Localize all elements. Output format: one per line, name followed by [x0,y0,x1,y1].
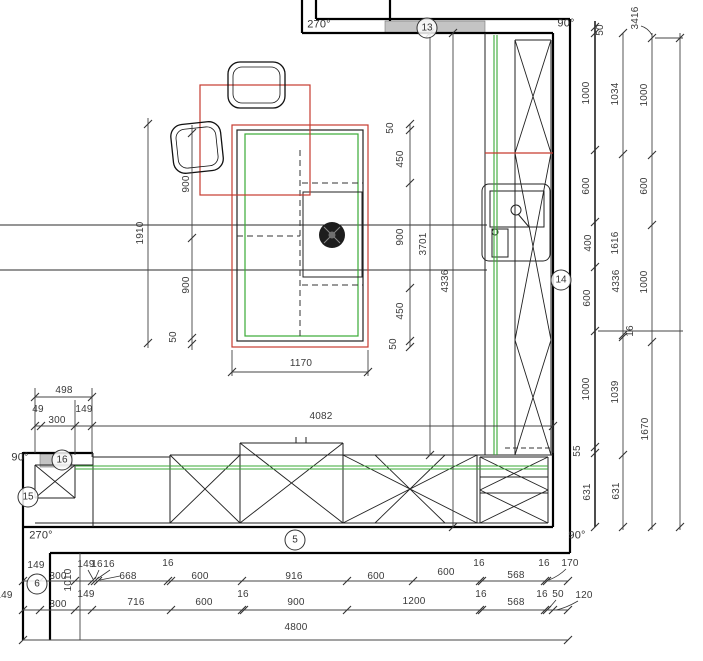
dim-label: 1039 [611,380,621,403]
angle-label: 270° [307,20,331,31]
dim-label: 600 [437,568,454,578]
room-boundary-lines [0,225,487,270]
tall-cabinet-column [485,33,551,455]
dim-label: 149 [75,405,92,415]
angle-label: 90° [568,531,585,542]
dim-label: 600 [583,289,593,306]
dim-label: 149 [0,591,13,601]
position-badge: 5 [285,530,306,551]
dim-label: 1000 [582,81,592,104]
dim-label: 16 [91,560,103,570]
dim-label: 55 [573,445,583,457]
dim-label: 50 [169,331,179,343]
dim-label: 631 [583,483,593,500]
dimension-lines [23,21,683,640]
dim-label: 900 [287,598,304,608]
position-badge: 6 [27,574,48,595]
angle-label: 90° [557,19,574,30]
island-hidden-lines [237,150,363,336]
highlight-outlines [200,85,553,347]
counter-edge-lines [75,35,548,469]
dim-label: 400 [584,234,594,251]
dim-label: 50 [552,590,564,600]
position-badge: 15 [18,487,39,508]
chair-left [170,121,225,175]
dim-label: 600 [640,177,650,194]
dim-label: 4336 [612,269,622,292]
dim-label: 716 [127,598,144,608]
dim-label: 900 [182,276,192,293]
chairs [170,62,285,174]
dim-label: 568 [507,571,524,581]
angle-label: 90° [11,453,28,464]
dim-label: 50 [386,122,396,134]
dim-label: 1034 [611,82,621,105]
dim-label: 16 [475,590,487,600]
dim-label: 16 [536,590,548,600]
dim-label: 600 [191,572,208,582]
dim-label: 4800 [284,623,307,633]
dim-label: 50 [389,338,399,350]
island [237,130,363,341]
dim-label: 149 [77,590,94,600]
dim-label: 1000 [640,83,650,106]
dim-label: 498 [55,386,72,396]
position-badge: 16 [52,450,73,471]
dim-label: 900 [396,228,406,245]
dim-label: 170 [561,559,578,569]
floor-plan-canvas: 270°90°90°270°90°50341610001034100060060… [0,0,703,661]
dim-label: 1616 [611,231,621,254]
dim-label: 450 [396,302,406,319]
dim-label: 16 [237,590,249,600]
dim-label: 600 [195,598,212,608]
dim-label: 16 [162,559,174,569]
dim-label: 450 [396,150,406,167]
angle-label: 270° [29,531,53,542]
tall-cabinet-x-marks [515,40,551,455]
dim-label: 1670 [641,417,651,440]
dim-label: 916 [285,572,302,582]
dim-label: 50 [596,24,606,36]
dim-label: 600 [582,177,592,194]
position-badge: 13 [417,18,438,39]
dim-label: 900 [182,175,192,192]
dim-label: 120 [575,591,592,601]
dim-label: 300 [49,600,66,610]
dim-label: 16 [103,560,115,570]
dim-label: 16 [538,559,550,569]
dim-label: 3701 [419,232,429,255]
dim-label: 1200 [402,597,425,607]
base-cabinets [35,437,553,527]
dim-label: 300 [48,416,65,426]
dim-label: 668 [119,572,136,582]
dimension-ticks [19,23,684,644]
dim-label: 49 [32,405,44,415]
dim-label: 1000 [582,377,592,400]
dim-label: 1170 [290,359,312,369]
dim-label: 16 [626,325,636,337]
faucet-icon [511,205,521,215]
position-badge: 14 [551,270,572,291]
dim-label: 3416 [631,6,641,29]
dim-label: 4082 [309,412,332,422]
dim-label: 1910 [136,221,146,244]
dim-label: 16 [473,559,485,569]
dim-label: 1000 [640,270,650,293]
dim-label: 1010 [64,568,74,591]
dim-label: 149 [27,561,44,571]
dim-label: 631 [612,482,622,499]
sink [482,184,550,261]
cooktop-burner-icon [319,222,345,248]
dim-label: 568 [507,598,524,608]
leader-lines [88,26,652,610]
dim-label: 4336 [441,269,451,292]
dim-label: 600 [367,572,384,582]
